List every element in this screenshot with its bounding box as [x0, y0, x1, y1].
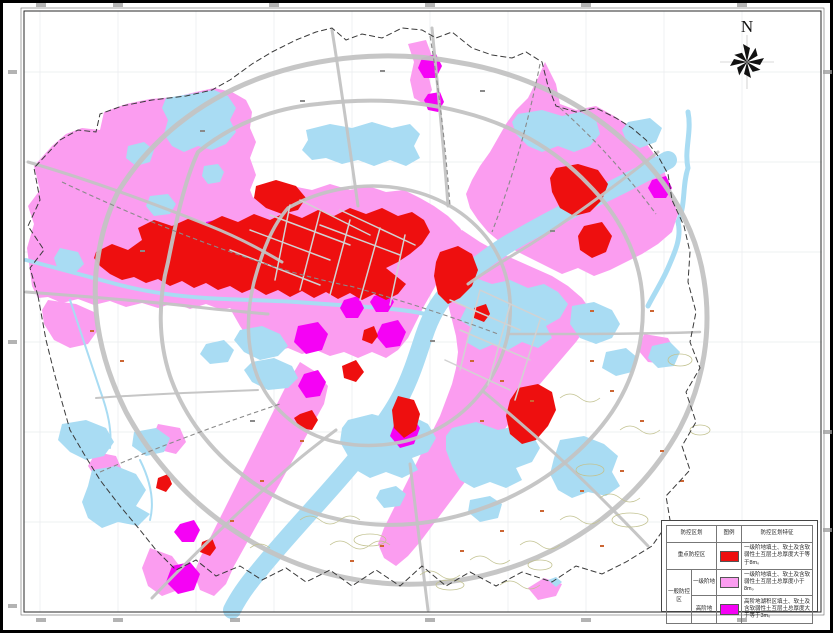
legend-zone-high-terrace: 高阶地 [692, 596, 717, 624]
legend-desc-red: 一级阶地填土、软土及含软弱性土互层土总厚度大于等于8m。 [742, 543, 813, 570]
legend-header-feature: 防控区划特征 [742, 526, 813, 543]
legend-zone-first-terrace: 一级阶地 [692, 570, 717, 596]
legend-swatch-red [720, 551, 739, 562]
compass-rose-icon [730, 44, 764, 78]
legend-box: 防控区划 图例 防控区划特征 重点防控区 一级阶地填土、软土及含软弱性土互层土总… [661, 520, 818, 612]
legend-table: 防控区划 图例 防控区划特征 重点防控区 一级阶地填土、软土及含软弱性土互层土总… [666, 525, 813, 624]
legend-header-symbol: 图例 [717, 526, 742, 543]
legend-zone-key: 重点防控区 [667, 543, 717, 570]
legend-swatch-pink [720, 577, 739, 588]
legend-swatch-magenta [720, 604, 739, 615]
legend-desc-magenta: 高阶地湖积区填土、软土及含软弱性土互层土总厚度大于等于3m。 [742, 596, 813, 624]
north-label: N [741, 17, 753, 36]
legend-desc-pink: 一级阶地填土、软土及含软弱性土互层土总厚度小于8m。 [742, 570, 813, 596]
legend-header-zone: 防控区划 [667, 526, 717, 543]
legend-zone-general: 一般防控区 [667, 570, 692, 624]
north-arrow: N [720, 17, 774, 89]
map-sheet: N 防控区划 图例 防控区划特征 重点防控区 一级阶地填土、软土及含软弱性土互层… [0, 0, 833, 633]
